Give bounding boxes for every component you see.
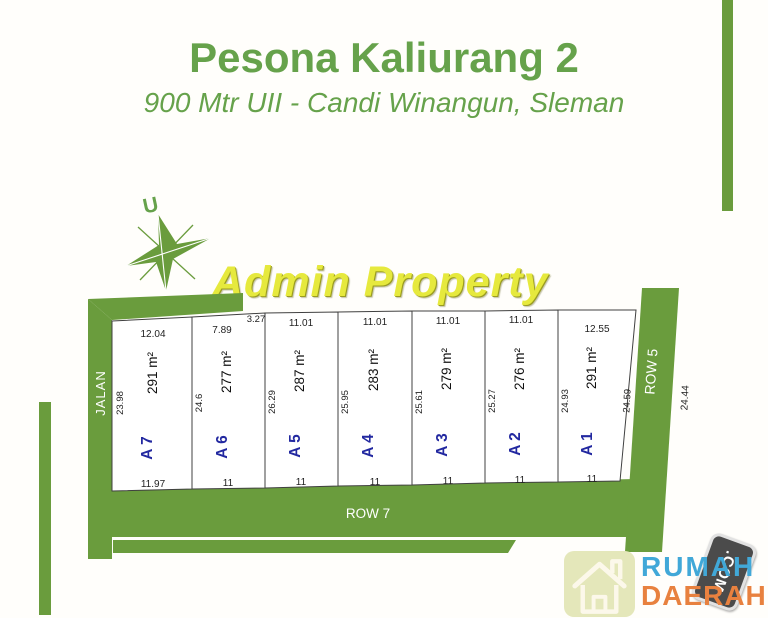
dim-left-a2: 25.27 <box>487 389 498 413</box>
plot-id-a1: A 1 <box>579 432 596 456</box>
area-a4: 283 m² <box>366 348 381 391</box>
road-label-row5: ROW 5 <box>641 348 660 395</box>
logo-word-daerah: DAERAH <box>641 580 767 612</box>
plot-id-a5: A 5 <box>287 434 304 458</box>
road-label-jalan: JALAN <box>93 370 108 415</box>
site-plan-svg: JALAN ROW 7 ROW 5 24.44 12.04 7.89 3.27 … <box>0 0 768 618</box>
plot-id-a3: A 3 <box>434 433 451 457</box>
dim-bottom-a4: 11 <box>370 477 381 488</box>
dim-left-a5: 26.29 <box>267 390 278 414</box>
logo-word-rumah: RUMAH <box>641 551 755 583</box>
dim-top-a5: 11.01 <box>289 318 314 329</box>
dim-top2-a6: 3.27 <box>247 314 266 325</box>
road-label-row7: ROW 7 <box>346 506 390 521</box>
area-a1: 291 m² <box>584 346 599 389</box>
dim-bottom-a5: 11 <box>296 477 307 488</box>
dim-top-a6: 7.89 <box>212 325 232 336</box>
area-a2: 276 m² <box>512 347 527 390</box>
plot-id-a2: A 2 <box>507 432 524 456</box>
dim-left-a1: 24.93 <box>560 389 571 413</box>
dim-top-a3: 11.01 <box>436 316 461 327</box>
dim-top-a4: 11.01 <box>363 317 388 328</box>
dim-left-a3: 25.61 <box>414 390 425 414</box>
house-icon <box>564 551 635 617</box>
dim-top-a2: 11.01 <box>509 315 534 326</box>
road-stub-bottom-left <box>88 537 112 559</box>
dim-left-a7: 23.98 <box>115 391 126 415</box>
dim-row5-outer: 24.44 <box>679 385 691 411</box>
dim-bottom-a3: 11 <box>443 476 454 487</box>
plot-id-a4: A 4 <box>360 434 377 458</box>
dim-bottom-a7: 11.97 <box>141 479 166 490</box>
dim-bottom-a2: 11 <box>515 475 526 486</box>
dim-top-a1: 12.55 <box>584 324 609 335</box>
area-a3: 279 m² <box>439 347 454 390</box>
dim-right-a1: 24.59 <box>621 389 633 413</box>
dim-bottom-a6: 11 <box>223 478 234 489</box>
plot-id-a7: A 7 <box>139 436 156 460</box>
left-road-bar <box>39 402 51 615</box>
compass-rose-icon: U <box>126 193 211 291</box>
logo-house-tile <box>564 551 635 617</box>
area-a6: 277 m² <box>219 350 234 393</box>
site-plan-poster: Pesona Kaliurang 2 900 Mtr UII - Candi W… <box>0 0 768 618</box>
dim-top-a7: 12.04 <box>140 329 165 340</box>
road-strip-below-row7 <box>113 540 516 553</box>
area-a5: 287 m² <box>292 349 307 392</box>
compass-north-label: U <box>141 193 161 219</box>
dim-left-a6: 24.6 <box>194 394 205 413</box>
area-a7: 291 m² <box>145 351 160 394</box>
dim-left-a4: 25.95 <box>340 390 351 414</box>
top-right-road-bar <box>722 0 733 211</box>
dim-bottom-a1: 11 <box>587 474 598 485</box>
plot-id-a6: A 6 <box>214 435 231 459</box>
